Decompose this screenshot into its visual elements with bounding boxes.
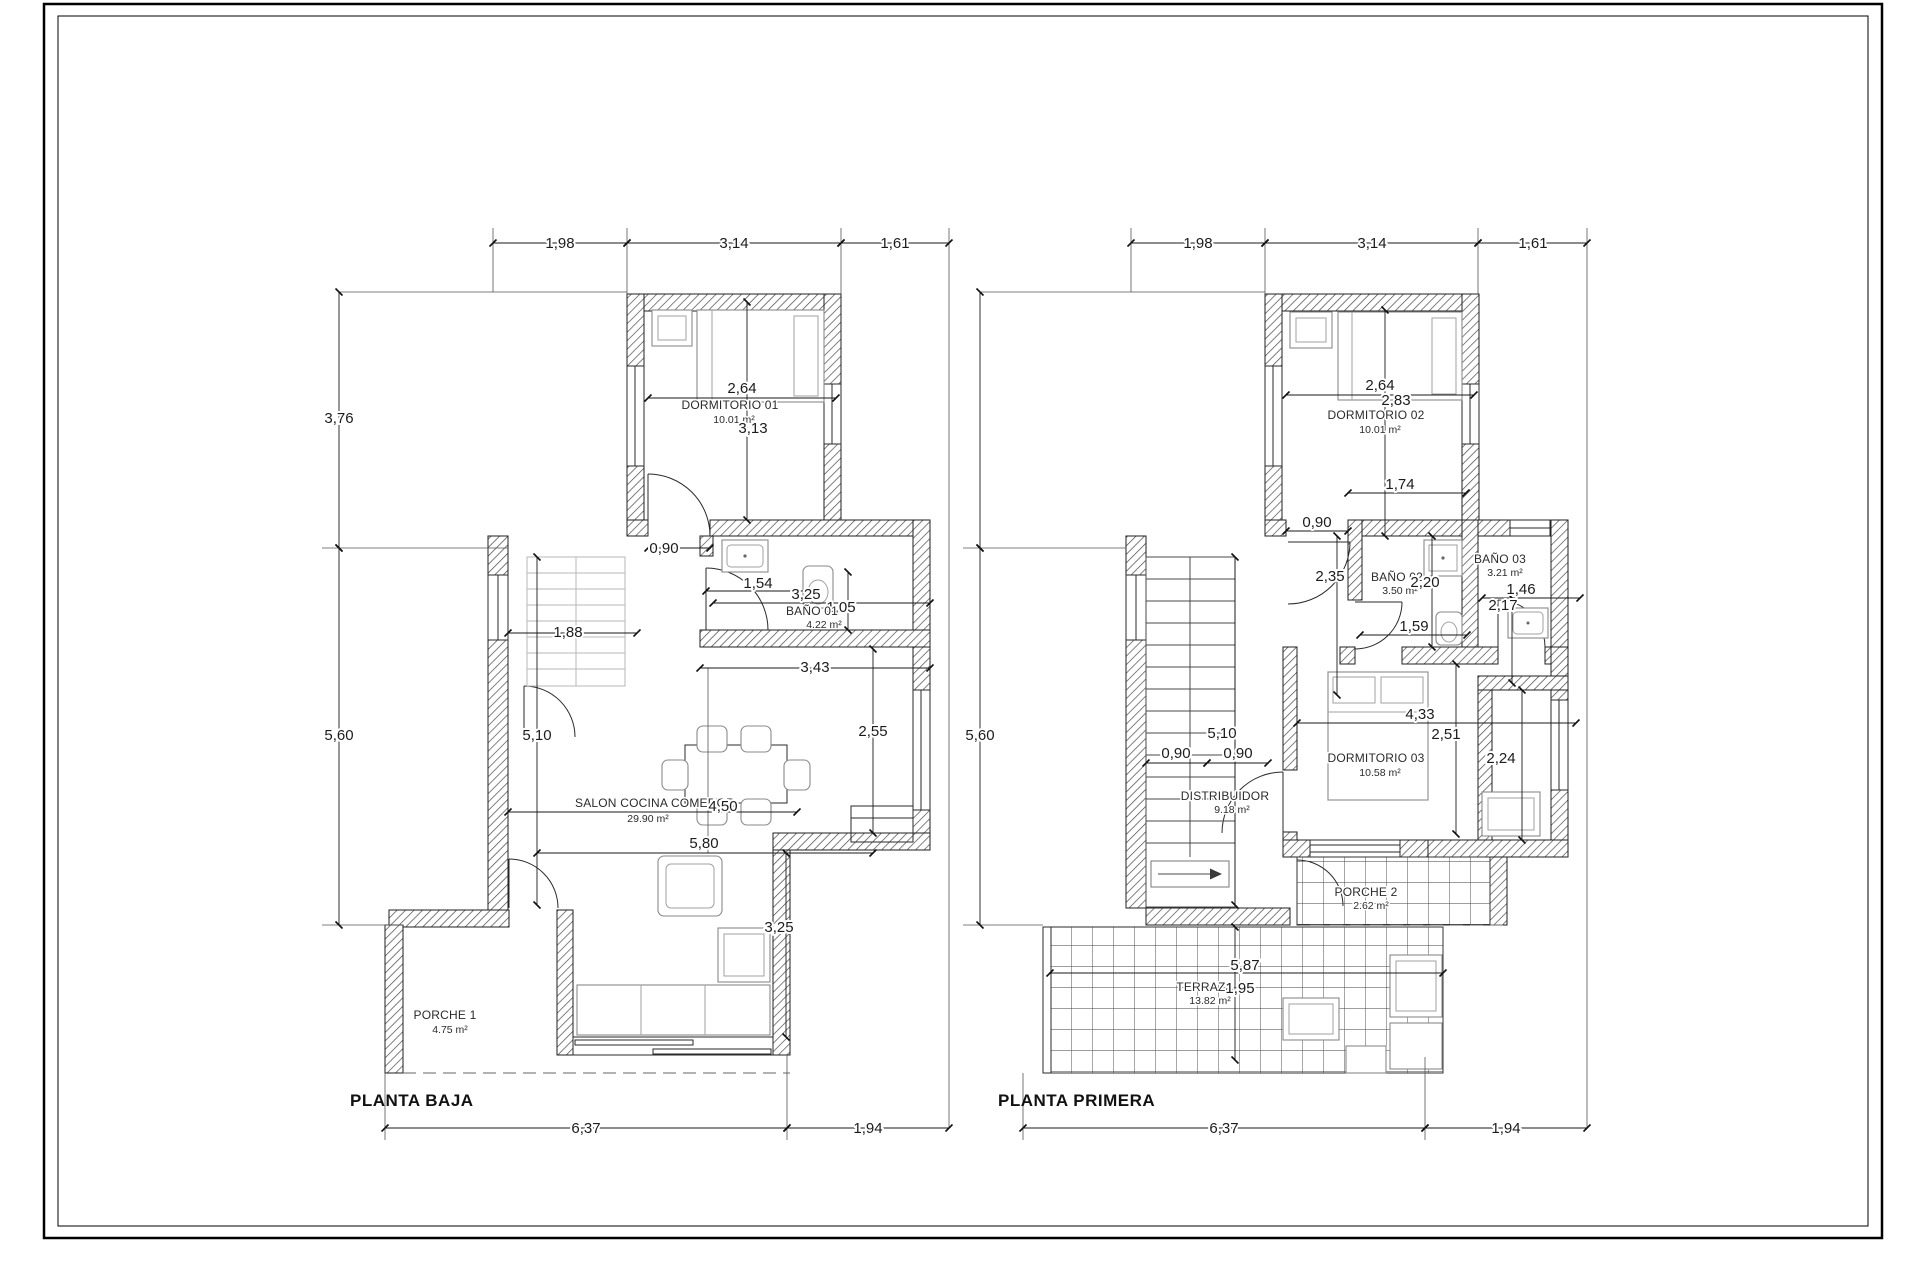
room-label-dormitorio-01: DORMITORIO 01 xyxy=(681,398,778,412)
room-area-dormitorio-02: 10.01 m² xyxy=(1359,424,1401,436)
room-area-distribuidor: 9.18 m² xyxy=(1214,804,1250,816)
dim-label: 3,14 xyxy=(1357,235,1386,252)
window-dorm2-left xyxy=(1265,366,1282,466)
window-bedroom-right xyxy=(824,384,841,444)
dim-label: 5,60 xyxy=(965,727,994,744)
dim-label: 1,46 xyxy=(1506,581,1535,598)
dim-label: 1,61 xyxy=(1518,235,1547,252)
dim-label: 2,64 xyxy=(727,380,756,397)
plan-title-planta-baja: PLANTA BAJA xyxy=(350,1091,474,1110)
dim-label: 0,90 xyxy=(649,540,678,557)
room-area-terraza: 13.82 m² xyxy=(1189,995,1231,1007)
window-dorm2-right xyxy=(1462,384,1479,444)
room-label-distribuidor: DISTRIBUIDOR xyxy=(1181,789,1270,803)
dresser-closet xyxy=(1482,792,1540,836)
dim-label: 3,25 xyxy=(764,919,793,936)
dim-label: 1,94 xyxy=(1491,1120,1520,1137)
window-stair xyxy=(1126,575,1146,640)
floorplan-svg: 1,98 3,14 1,61 3,76 5,60 6,37 1,94 2,64 … xyxy=(0,0,1920,1280)
room-label-bano-01: BAÑO 01 xyxy=(786,604,838,618)
room-area-bano-01: 4.22 m² xyxy=(806,619,842,631)
dim-label: 3,13 xyxy=(738,420,767,437)
sink-bano-01 xyxy=(722,540,768,572)
dim-label: 2,35 xyxy=(1315,568,1344,585)
dim-label: 2,20 xyxy=(1410,574,1439,591)
room-area-salon: 29.90 m² xyxy=(627,813,669,825)
toilet-bano-02 xyxy=(1436,612,1462,645)
window-closet-east xyxy=(1551,700,1568,790)
bed-dormitorio-01 xyxy=(697,310,824,402)
dim-label: 2,55 xyxy=(858,723,887,740)
room-area-porche-1: 4.75 m² xyxy=(432,1024,468,1036)
dim-label: 2,51 xyxy=(1431,726,1460,743)
nightstand-2 xyxy=(1290,312,1332,348)
dim-label: 1,98 xyxy=(1183,235,1212,252)
room-area-porche-2: 2.62 m² xyxy=(1353,900,1389,912)
dim-label: 5,80 xyxy=(689,835,718,852)
dim-label: 2,24 xyxy=(1486,750,1515,767)
stair-direction-arrow xyxy=(1151,861,1229,887)
window-bedroom-left xyxy=(627,366,644,466)
room-label-porche-2: PORCHE 2 xyxy=(1335,885,1398,899)
room-label-dormitorio-02: DORMITORIO 02 xyxy=(1327,408,1424,422)
room-label-bano-03: BAÑO 03 xyxy=(1474,552,1526,566)
dim-label: 5,87 xyxy=(1230,957,1259,974)
armchair xyxy=(658,856,722,916)
dim-label: 5,10 xyxy=(522,727,551,744)
window-bano3-top xyxy=(1510,520,1550,536)
dim-label: 3,14 xyxy=(719,235,748,252)
dim-label: 1,98 xyxy=(545,235,574,252)
dim-label: 5,10 xyxy=(1207,725,1236,742)
window-salon-right xyxy=(913,690,930,810)
dim-label: 1,54 xyxy=(743,575,772,592)
dim-label: 2,17 xyxy=(1488,597,1517,614)
dim-label: 2,83 xyxy=(1381,392,1410,409)
bed-dormitorio-03 xyxy=(1328,672,1428,800)
dim-label: 0,90 xyxy=(1302,514,1331,531)
dim-label: 1,74 xyxy=(1385,476,1414,493)
dim-label: 1,61 xyxy=(880,235,909,252)
dim-label: 5,60 xyxy=(324,727,353,744)
dim-label: 1,94 xyxy=(853,1120,882,1137)
dim-label: 4,33 xyxy=(1405,706,1434,723)
drawing-sheet: 1,98 3,14 1,61 3,76 5,60 6,37 1,94 2,64 … xyxy=(0,0,1920,1280)
dim-label: 0,90 xyxy=(1161,745,1190,762)
dim-label: 6,37 xyxy=(571,1120,600,1137)
dim-label: 3,76 xyxy=(324,410,353,427)
bed-dormitorio-02 xyxy=(1338,312,1462,400)
plan-title-planta-primera: PLANTA PRIMERA xyxy=(998,1091,1155,1110)
room-label-porche-1: PORCHE 1 xyxy=(414,1008,477,1022)
room-label-dormitorio-03: DORMITORIO 03 xyxy=(1327,751,1424,765)
dim-label: 3,25 xyxy=(791,586,820,603)
dim-label: 1,88 xyxy=(553,624,582,641)
window-entry xyxy=(488,575,508,640)
nightstand xyxy=(652,310,692,346)
window-dorm3-south xyxy=(1310,840,1400,857)
room-area-bano-03: 3.21 m² xyxy=(1487,567,1523,579)
window-salon-south-slider xyxy=(573,1037,773,1055)
dim-label: 0,90 xyxy=(1223,745,1252,762)
room-area-dormitorio-03: 10.58 m² xyxy=(1359,767,1401,779)
terraza-rail xyxy=(1043,927,1051,1073)
dim-label: 4,50 xyxy=(708,798,737,815)
dim-label: 6,37 xyxy=(1209,1120,1238,1137)
dim-label: 3,43 xyxy=(800,659,829,676)
dim-label: 1,59 xyxy=(1399,618,1428,635)
sheet-border xyxy=(44,4,1882,1238)
shower-bano-02 xyxy=(1424,540,1462,576)
